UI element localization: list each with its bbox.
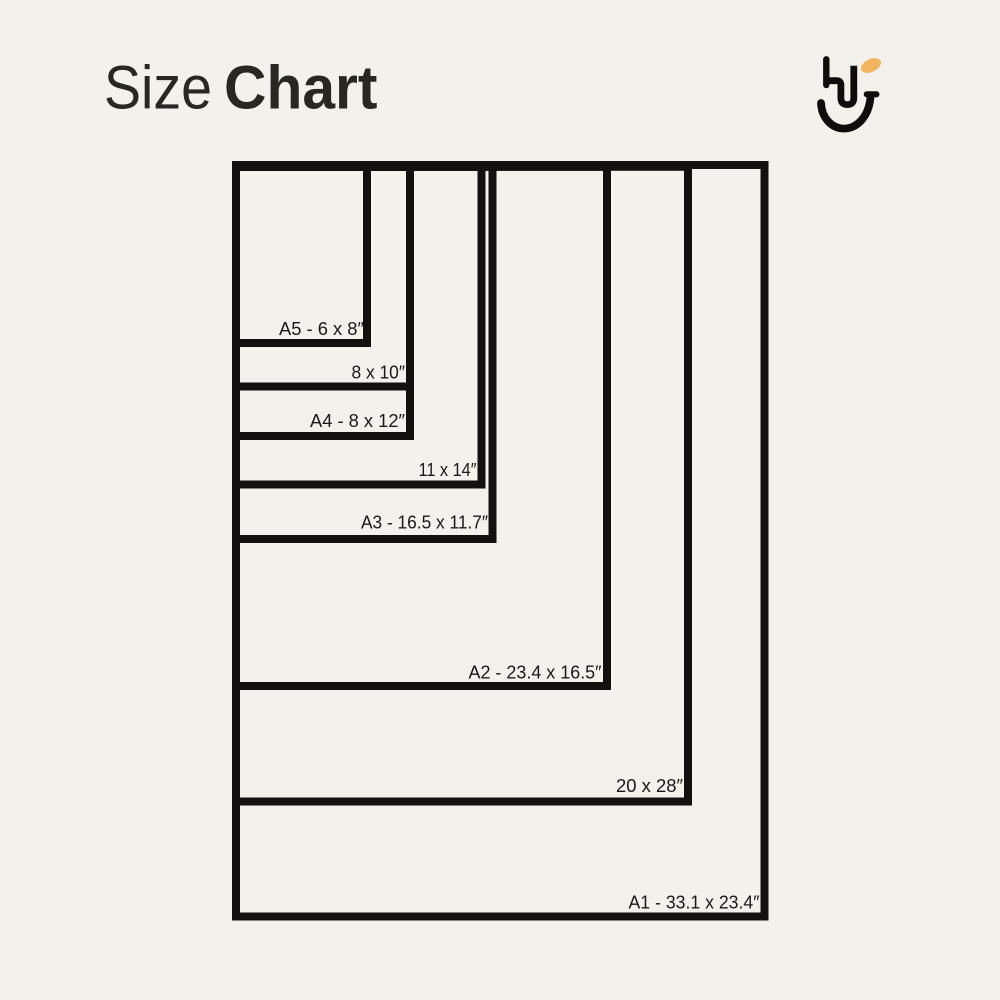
svg-text:11 x 14″: 11 x 14″ bbox=[419, 460, 478, 480]
svg-text:A3 - 16.5 x 11.7″: A3 - 16.5 x 11.7″ bbox=[361, 513, 489, 533]
svg-text:A4 - 8 x 12″: A4 - 8 x 12″ bbox=[310, 411, 406, 431]
svg-text:20 x 28″: 20 x 28″ bbox=[616, 776, 684, 796]
svg-text:A2 - 23.4 x 16.5″: A2 - 23.4 x 16.5″ bbox=[469, 663, 603, 683]
svg-text:8 x 10″: 8 x 10″ bbox=[352, 363, 406, 383]
svg-text:A1 - 33.1 x 23.4″: A1 - 33.1 x 23.4″ bbox=[629, 893, 761, 913]
svg-text:Size: Size bbox=[104, 54, 212, 122]
svg-text:Chart: Chart bbox=[224, 54, 378, 122]
svg-text:A5 - 6 x 8″: A5 - 6 x 8″ bbox=[279, 319, 365, 339]
